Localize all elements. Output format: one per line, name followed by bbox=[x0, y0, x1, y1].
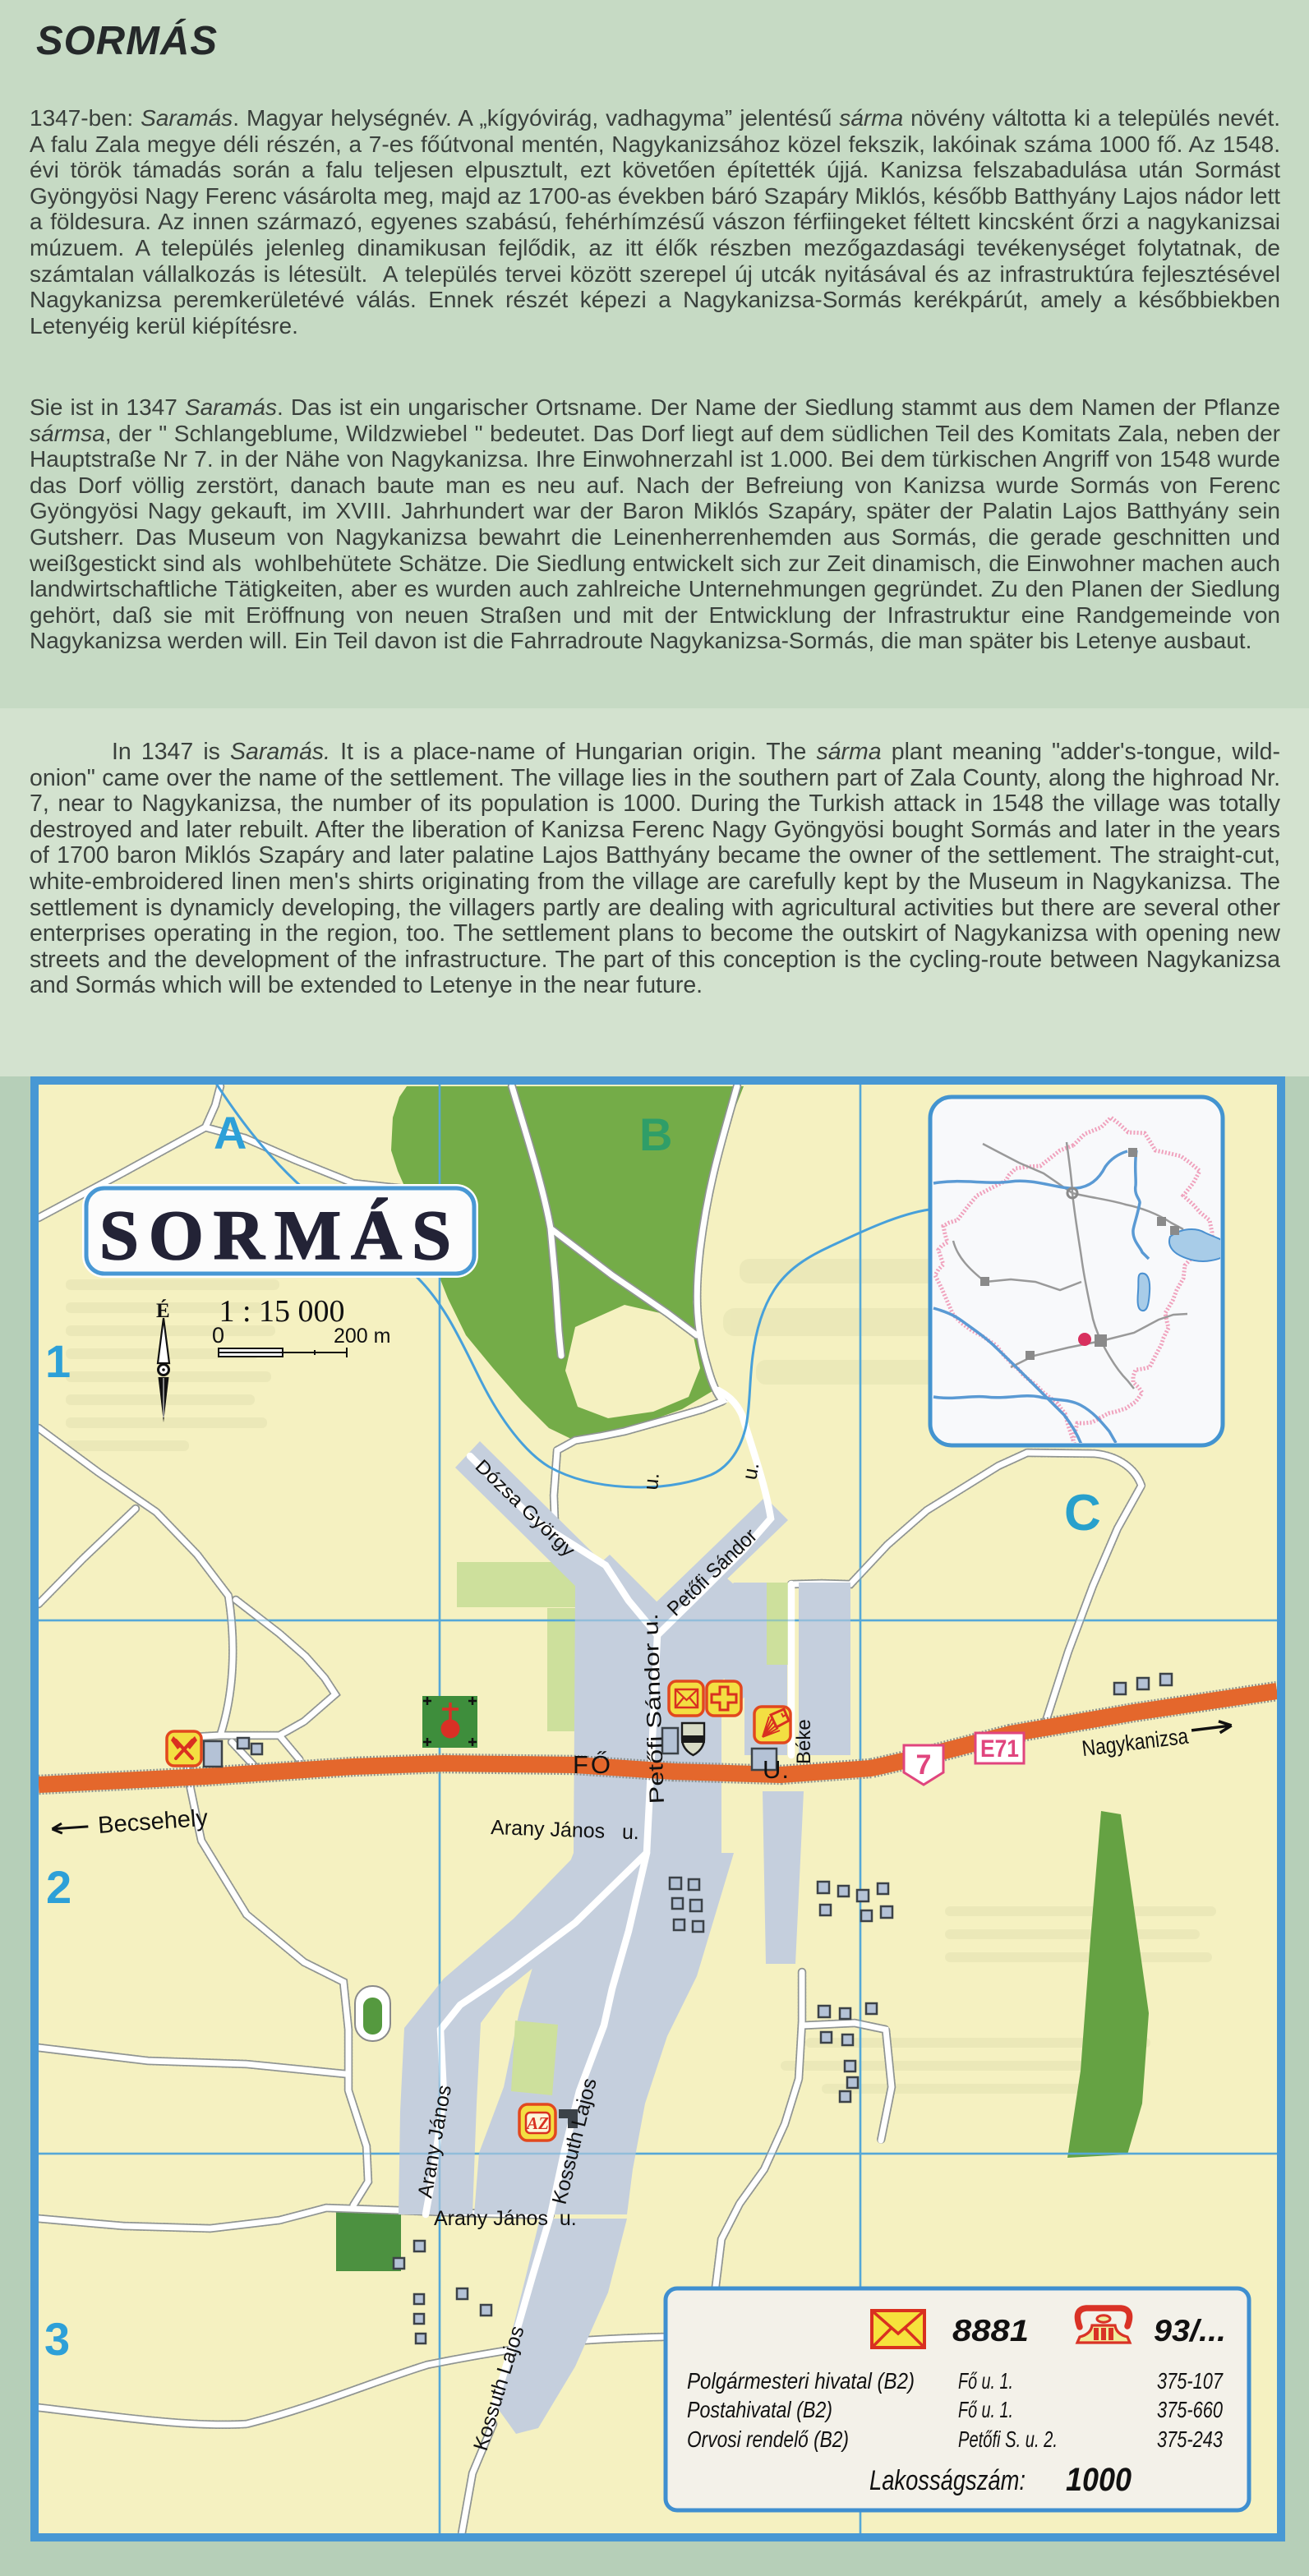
svg-text:AZ: AZ bbox=[525, 2113, 549, 2133]
svg-text:FŐ: FŐ bbox=[573, 1750, 613, 1779]
svg-text:Arany János u.: Arany János u. bbox=[434, 2207, 577, 2230]
svg-text:E71: E71 bbox=[980, 1735, 1019, 1763]
svg-text:A: A bbox=[214, 1107, 247, 1159]
svg-text:1000: 1000 bbox=[1066, 2462, 1132, 2498]
svg-text:U.: U. bbox=[763, 1755, 790, 1784]
svg-text:375-107: 375-107 bbox=[1157, 2368, 1224, 2394]
svg-text:Béke: Béke bbox=[793, 1719, 815, 1764]
svg-text:375-243: 375-243 bbox=[1157, 2426, 1223, 2452]
svg-text:SORMÁS: SORMÁS bbox=[99, 1196, 461, 1274]
svg-text:1: 1 bbox=[45, 1335, 71, 1387]
svg-text:7: 7 bbox=[916, 1749, 932, 1781]
svg-text:Lakosságszám:: Lakosságszám: bbox=[869, 2465, 1026, 2496]
svg-text:Petőfi S. u. 2.: Petőfi S. u. 2. bbox=[958, 2426, 1058, 2452]
svg-text:Polgármesteri hivatal (B2): Polgármesteri hivatal (B2) bbox=[687, 2368, 915, 2394]
svg-text:8881: 8881 bbox=[952, 2314, 1029, 2348]
svg-text:375-660: 375-660 bbox=[1157, 2397, 1223, 2422]
svg-text:u.: u. bbox=[639, 1472, 664, 1491]
svg-text:Postahivatal (B2): Postahivatal (B2) bbox=[687, 2397, 832, 2422]
svg-text:200 m: 200 m bbox=[334, 1325, 390, 1348]
svg-text:0: 0 bbox=[212, 1323, 224, 1348]
svg-text:C: C bbox=[1064, 1485, 1101, 1541]
svg-text:B: B bbox=[639, 1108, 672, 1160]
svg-text:1 : 15 000: 1 : 15 000 bbox=[219, 1294, 344, 1329]
svg-text:3: 3 bbox=[44, 2313, 70, 2365]
svg-text:Fő u. 1.: Fő u. 1. bbox=[958, 2368, 1013, 2394]
svg-text:93/...: 93/... bbox=[1154, 2314, 1226, 2348]
svg-text:Fő u. 1.: Fő u. 1. bbox=[958, 2397, 1013, 2422]
svg-text:Orvosi rendelő (B2): Orvosi rendelő (B2) bbox=[687, 2426, 849, 2452]
svg-text:2: 2 bbox=[46, 1861, 71, 1913]
